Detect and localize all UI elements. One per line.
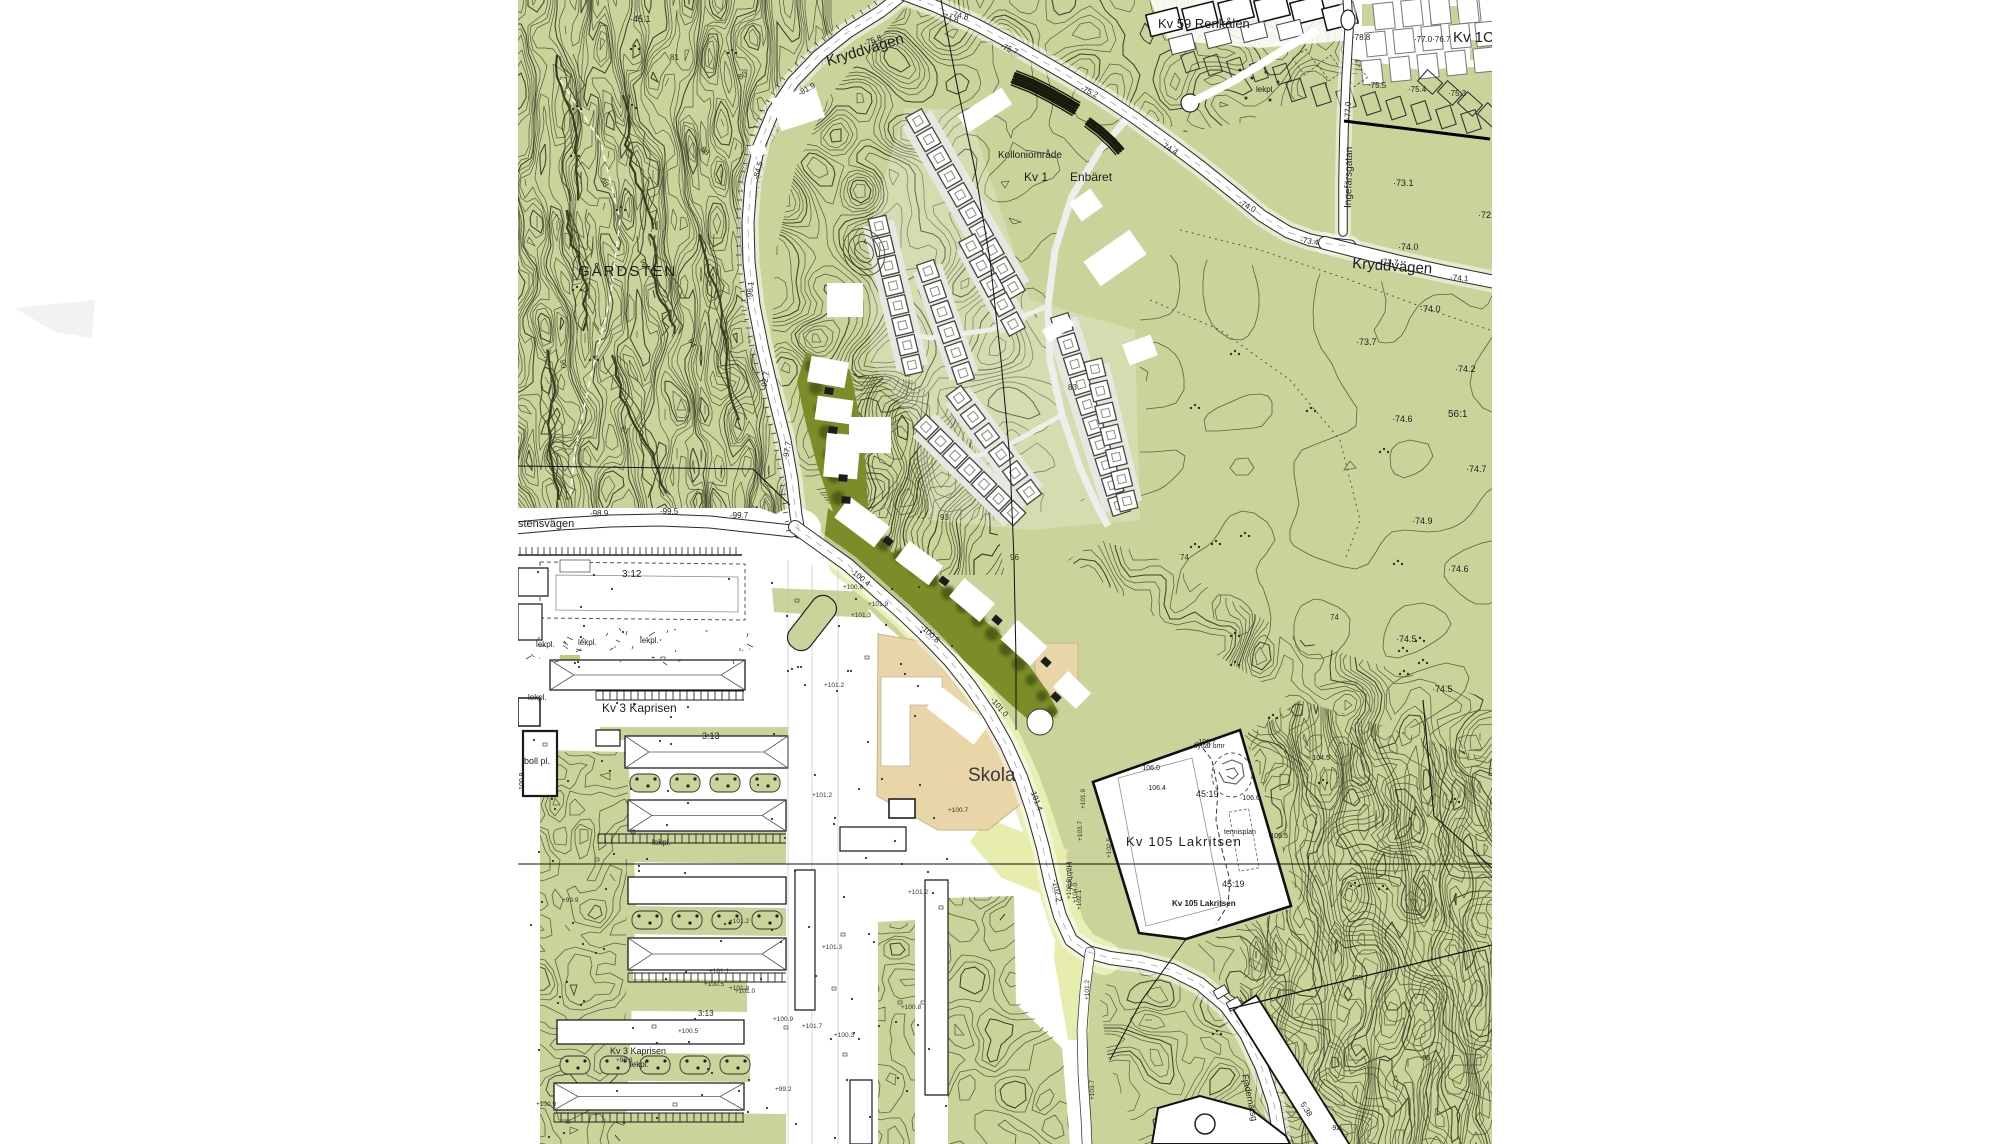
svg-text:+100.5: +100.5 [678,1028,698,1035]
svg-text:Kv 3 Kaprisen: Kv 3 Kaprisen [602,701,677,715]
svg-text:·92: ·92 [1330,1125,1340,1132]
svg-text:+103.7: +103.7 [1077,821,1084,841]
svg-text:·74.7: ·74.7 [1466,464,1487,474]
svg-text:-99.5: -99.5 [660,507,679,516]
svg-text:·74.6: ·74.6 [1448,564,1469,574]
svg-text:·74.5: ·74.5 [1396,634,1417,644]
svg-text:·74.0: ·74.0 [1420,304,1441,314]
svg-text:+100.6: +100.6 [843,584,863,591]
svg-text:-74.1: -74.1 [1450,273,1469,283]
svg-text:·106.5: ·106.5 [1268,833,1288,840]
svg-text:Kv 1C: Kv 1C [1453,29,1494,46]
svg-text:·74.9: ·74.9 [1412,516,1433,526]
svg-text:lekpl.: lekpl. [578,638,597,647]
svg-text:+101.2: +101.2 [824,682,844,689]
svg-text:·106.7: ·106.7 [1196,739,1216,746]
svg-text:·78.8: ·78.8 [1352,33,1371,42]
svg-text:93: 93 [940,513,949,522]
svg-text:100.9: 100.9 [519,772,526,790]
svg-text:+100.8: +100.8 [901,1004,921,1011]
svg-text:Kv 105 Lakritsen: Kv 105 Lakritsen [1172,899,1236,908]
svg-text:+99.9: +99.9 [562,897,579,904]
svg-text:Skola: Skola [968,765,1016,786]
svg-text:+101.2: +101.2 [729,918,749,925]
svg-text:lekpl.: lekpl. [528,693,547,702]
svg-text:·106.4: ·106.4 [1146,785,1166,792]
svg-text:74: 74 [1330,613,1339,622]
svg-text:·75.3: ·75.3 [1448,89,1467,98]
svg-text:Kv 1: Kv 1 [1024,170,1048,184]
svg-text:81: 81 [670,53,679,62]
svg-text:+103.7: +103.7 [1089,1080,1096,1100]
svg-text:45:19: 45:19 [1196,789,1219,799]
svg-text:lekpl.: lekpl. [536,640,555,649]
svg-text:lekpl.: lekpl. [1256,85,1275,94]
svg-text:3:13: 3:13 [702,731,720,741]
svg-text:83: 83 [1068,383,1077,392]
svg-text:-73.7: -73.7 [1380,257,1399,267]
svg-text:3:13: 3:13 [698,1009,714,1018]
svg-text:+101.7: +101.7 [802,1023,822,1030]
svg-text:·74.6: ·74.6 [1392,414,1413,424]
svg-text:+101.0: +101.0 [735,988,755,995]
svg-text:·73.1: ·73.1 [1393,178,1414,188]
svg-text:·75.4: ·75.4 [1408,85,1427,94]
svg-text:·45.1: ·45.1 [630,14,651,24]
svg-text:+101.3: +101.3 [851,612,871,619]
svg-text:Kv 3 Kaprisen: Kv 3 Kaprisen [610,1046,666,1056]
svg-text:Kv 105 Lakritsen: Kv 105 Lakritsen [1126,834,1242,849]
svg-text:lekpl.: lekpl. [652,838,671,847]
svg-text:-98.1: -98.1 [745,281,756,300]
svg-text:stensvägen: stensvägen [518,518,574,530]
svg-text:+100.7: +100.7 [948,807,968,814]
svg-text:+100.9: +100.9 [773,1016,793,1023]
svg-text:boll pl.: boll pl. [524,756,550,766]
svg-text:·74.5: ·74.5 [1432,684,1453,694]
svg-text:·74.0: ·74.0 [1398,242,1419,252]
svg-text:+101.1: +101.1 [709,968,729,975]
svg-text:+100.3: +100.3 [834,1032,854,1039]
svg-text:74: 74 [1180,553,1189,562]
svg-text:+99.8: +99.8 [616,1057,633,1064]
svg-text:+100.5: +100.5 [704,981,724,988]
svg-text:+101.3: +101.3 [822,944,842,951]
svg-text:·104.5: ·104.5 [1310,755,1330,762]
svg-text:+101.2: +101.2 [812,792,832,799]
svg-text:·106.6: ·106.6 [1240,795,1260,802]
svg-text:+101.2: +101.2 [908,889,928,896]
svg-text:·106.0: ·106.0 [1140,765,1160,772]
svg-text:56:1: 56:1 [1448,409,1468,420]
svg-text:Ingefärsgatan: Ingefärsgatan [1343,147,1355,208]
svg-text:-77.0: -77.0 [1343,101,1353,120]
svg-text:Enbäret: Enbäret [1070,170,1113,184]
svg-text:Kolloniområde: Kolloniområde [998,149,1062,161]
svg-text:-98.9: -98.9 [590,509,609,518]
svg-text:Kv 59 Renkålen: Kv 59 Renkålen [1158,16,1250,31]
svg-text:+102.5: +102.5 [1106,838,1113,858]
svg-text:GÅRDSTEN: GÅRDSTEN [578,263,677,280]
svg-text:tennisplan: tennisplan [1224,829,1256,836]
svg-text:·95: ·95 [1352,975,1362,982]
svg-text:+100.9: +100.9 [536,1101,556,1108]
svg-text:+101.2: +101.2 [1084,980,1091,1000]
svg-text:·96: ·96 [1420,1055,1430,1062]
svg-text:·74.2: ·74.2 [1455,364,1476,374]
svg-text:+101.9: +101.9 [1080,789,1087,809]
svg-text:45:19: 45:19 [1222,879,1245,889]
svg-text:96: 96 [1010,553,1019,562]
svg-text:+102.1: +102.1 [1076,890,1083,910]
svg-text:-99.7: -99.7 [730,511,749,520]
svg-text:lekpl.: lekpl. [630,1060,649,1069]
svg-text:+101.9: +101.9 [868,601,888,608]
svg-text:·73.7: ·73.7 [1356,337,1377,347]
svg-text:·75.5: ·75.5 [1368,81,1387,90]
svg-text:3:12: 3:12 [622,569,642,580]
svg-text:lekpl.: lekpl. [640,636,659,645]
svg-text:+99.2: +99.2 [775,1086,792,1093]
svg-text:+103.5: +103.5 [1066,879,1073,899]
svg-text:·77.0·76.7: ·77.0·76.7 [1414,35,1451,44]
